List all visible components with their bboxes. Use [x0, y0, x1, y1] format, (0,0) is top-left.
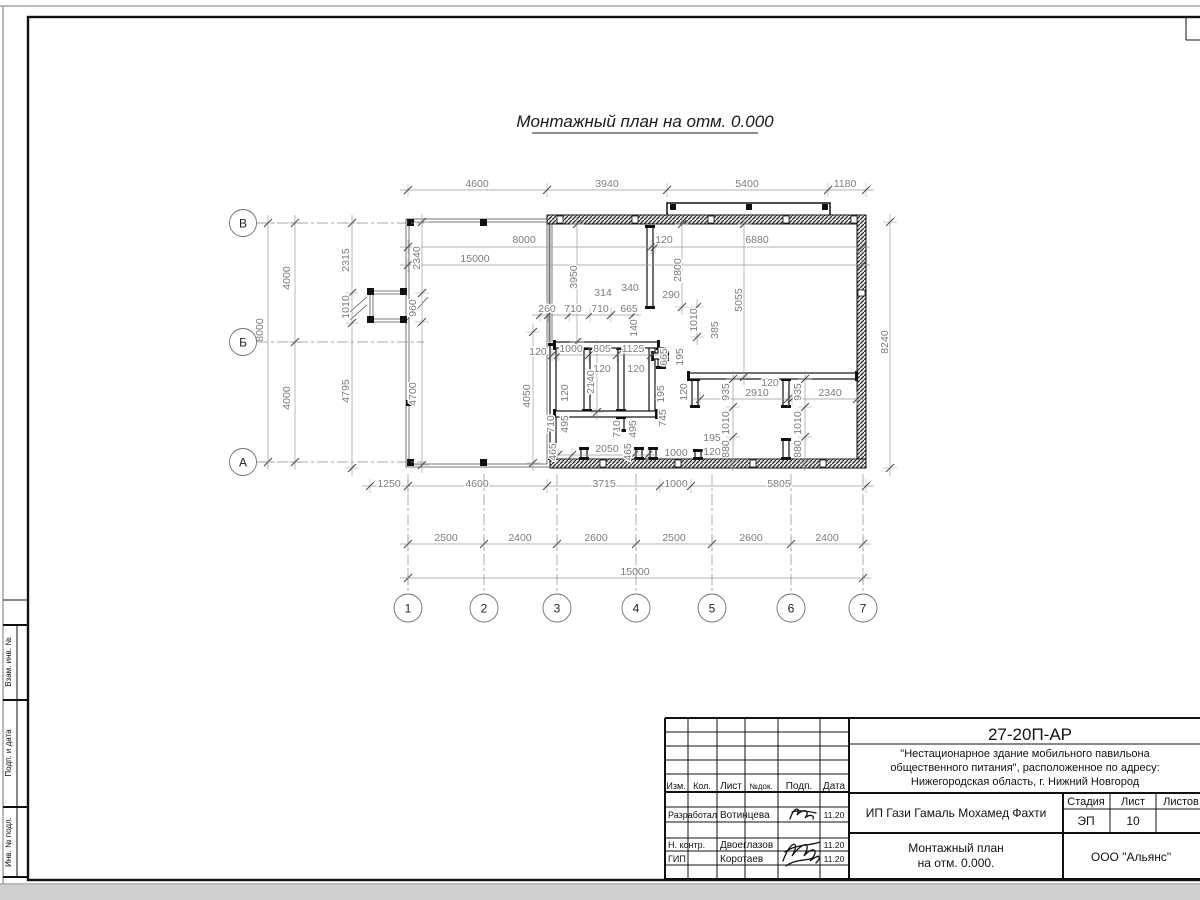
col-ndok: №док. [749, 782, 772, 791]
dimension-label: 1010 [688, 308, 700, 332]
company-name: ООО "Альянс" [1091, 850, 1171, 864]
dimension-label: 2600 [584, 532, 608, 544]
dimension-label: 3950 [568, 265, 580, 289]
dimension-label: 340 [621, 282, 639, 294]
sheet-number: 10 [1126, 814, 1140, 828]
dimension-label: 1000 [559, 343, 583, 355]
dimension-label: 6880 [745, 234, 769, 246]
dimension-label: 260 [538, 303, 556, 315]
drawing-name-line2: на отм. 0.000. [918, 856, 995, 870]
dimension-label: 2340 [411, 246, 423, 270]
row-axis-label: В [239, 217, 247, 231]
dimension-label: 665 [620, 303, 638, 315]
dimension-label: 805 [593, 343, 611, 355]
dimension-label: 290 [662, 289, 680, 301]
dimension-label: 1010 [720, 411, 732, 435]
col-axis-label: 3 [554, 602, 561, 616]
project-description-line1: "Нестационарное здание мобильного павиль… [900, 748, 1150, 760]
col-list: Лист [720, 781, 742, 792]
dimension-label: 4050 [521, 384, 533, 408]
dimension-label: 5400 [735, 178, 759, 190]
row-role-ncontr: Н. контр. [668, 840, 705, 850]
dimension-label: 935 [720, 383, 732, 401]
col-axis-label: 2 [481, 602, 488, 616]
dimension-label: 465 [547, 443, 559, 461]
title-block: Изм. Кол. Лист №док. Подп. Дата Разработ… [665, 718, 1200, 879]
row-date-developer: 11.20 [824, 810, 845, 820]
row-name-gip: Коротаев [720, 854, 763, 865]
dimension-label: 2400 [508, 532, 532, 544]
dimension-label: 495 [559, 415, 571, 433]
dimension-label: 120 [703, 446, 721, 458]
client-name: ИП Гази Гамаль Мохамед Фахти [866, 806, 1047, 820]
margin-label-inv: Инв. № подл. [4, 817, 13, 867]
dimension-label: 120 [627, 363, 645, 375]
document-number: 27-20П-АР [988, 725, 1072, 744]
drawing-title: Монтажный план на отм. 0.000 [516, 112, 774, 133]
floor-plan [350, 203, 866, 468]
dimension-label: 2600 [739, 532, 763, 544]
margin-label-vzam: Взам. инв. № [4, 637, 13, 687]
dimension-label: 880 [720, 440, 732, 458]
dimension-label: 4600 [465, 178, 489, 190]
project-description-line3: Нижегородская область, г. Нижний Новгоро… [911, 776, 1140, 788]
col-axis-label: 4 [633, 602, 640, 616]
signature-ncontr-gip [783, 842, 820, 866]
architectural-drawing: Взам. инв. № Подп. и дата Инв. № подл. М… [0, 0, 1200, 900]
dimension-label: 2800 [672, 258, 684, 282]
col-axis-label: 5 [709, 602, 716, 616]
row-axis-label: Б [239, 336, 247, 350]
dimension-label: 120 [678, 383, 690, 401]
row-name-ncontr: Двоеглазов [720, 840, 773, 851]
row-date-gip: 11.20 [824, 854, 845, 864]
dimension-label: 15000 [460, 253, 489, 265]
dimension-label: 4600 [465, 478, 489, 490]
dimension-label: 1125 [622, 343, 645, 355]
drawing-sheet: Взам. инв. № Подп. и дата Инв. № подл. М… [0, 0, 1200, 900]
col-data: Дата [823, 781, 846, 792]
dimension-label: 1000 [664, 478, 688, 490]
dimension-label: 120 [529, 346, 547, 358]
col-axis-label: 1 [405, 602, 412, 616]
project-description-line2: общественного питания", расположенное по… [890, 762, 1159, 774]
row-name-developer: Вотинцева [720, 810, 770, 821]
dimension-label: 710 [564, 303, 582, 315]
margin-label-podp: Подп. и дата [4, 729, 13, 777]
dimension-label: 120 [655, 234, 673, 246]
dimension-label: 2500 [662, 532, 686, 544]
dimension-label: 120 [559, 384, 571, 402]
sheets-label: Листов [1163, 796, 1199, 808]
dimension-label: 4000 [281, 266, 293, 290]
dimension-label: 1010 [340, 295, 352, 319]
dimension-label: 2315 [340, 248, 352, 272]
dimension-label: 960 [407, 299, 419, 317]
dimension-label: 5055 [733, 288, 745, 312]
dimension-label: 8000 [512, 234, 536, 246]
dimension-label: 195 [655, 385, 667, 403]
col-izm: Изм. [666, 781, 685, 791]
dimension-label: 2050 [595, 443, 619, 455]
dimension-label: 710 [545, 415, 557, 433]
page-title: Монтажный план на отм. 0.000 [516, 112, 774, 131]
dimension-label: 1250 [377, 478, 401, 490]
dimension-label: 2400 [815, 532, 839, 544]
dimension-label: 195 [674, 348, 686, 366]
dimension-label: 935 [792, 383, 804, 401]
dimension-label: 195 [703, 432, 721, 444]
row-role-gip: ГИП [668, 854, 686, 864]
dimension-label: 2910 [745, 387, 769, 399]
dimension-label: 710 [591, 303, 609, 315]
dimension-label: 314 [594, 287, 612, 299]
dimension-label: 880 [792, 440, 804, 458]
dimension-label: 1010 [792, 411, 804, 435]
dimension-label: 140 [628, 319, 640, 337]
dimension-label: 465 [622, 443, 634, 461]
dimension-label: 1000 [664, 447, 688, 459]
col-axis-label: 6 [788, 602, 795, 616]
dimension-label: 5805 [767, 478, 791, 490]
col-podp: Подп. [786, 781, 813, 792]
row-role-developer: Разработал [668, 810, 717, 820]
dimension-label: 495 [627, 420, 639, 438]
signature-developer [790, 809, 816, 819]
sheet-label: Лист [1121, 796, 1145, 808]
dimension-label: 745 [657, 409, 669, 427]
dimension-label: 385 [709, 321, 721, 339]
stage-label: Стадия [1067, 796, 1105, 808]
dimension-label: 4795 [340, 379, 352, 403]
dimension-label: 710 [611, 420, 623, 438]
dimension-label: 4700 [407, 382, 419, 406]
row-axis-label: А [239, 456, 247, 470]
dimension-label: 2140 [585, 370, 597, 394]
row-date-ncontr: 11.20 [824, 840, 845, 850]
dimension-label: 3940 [595, 178, 619, 190]
dimension-label: 15000 [620, 566, 649, 578]
stage-value: ЭП [1077, 814, 1094, 828]
dimension-label: 3715 [592, 478, 616, 490]
dimension-label: 4000 [281, 386, 293, 410]
col-axis-label: 7 [860, 602, 867, 616]
dimension-label: 2500 [434, 532, 458, 544]
dimension-label: 1180 [834, 178, 857, 190]
col-kol: Кол. [693, 781, 711, 791]
drawing-name-line1: Монтажный план [908, 841, 1004, 855]
dimension-label: 8240 [879, 330, 891, 354]
dimension-label: 665 [658, 348, 670, 366]
dimension-label: 2340 [818, 387, 842, 399]
